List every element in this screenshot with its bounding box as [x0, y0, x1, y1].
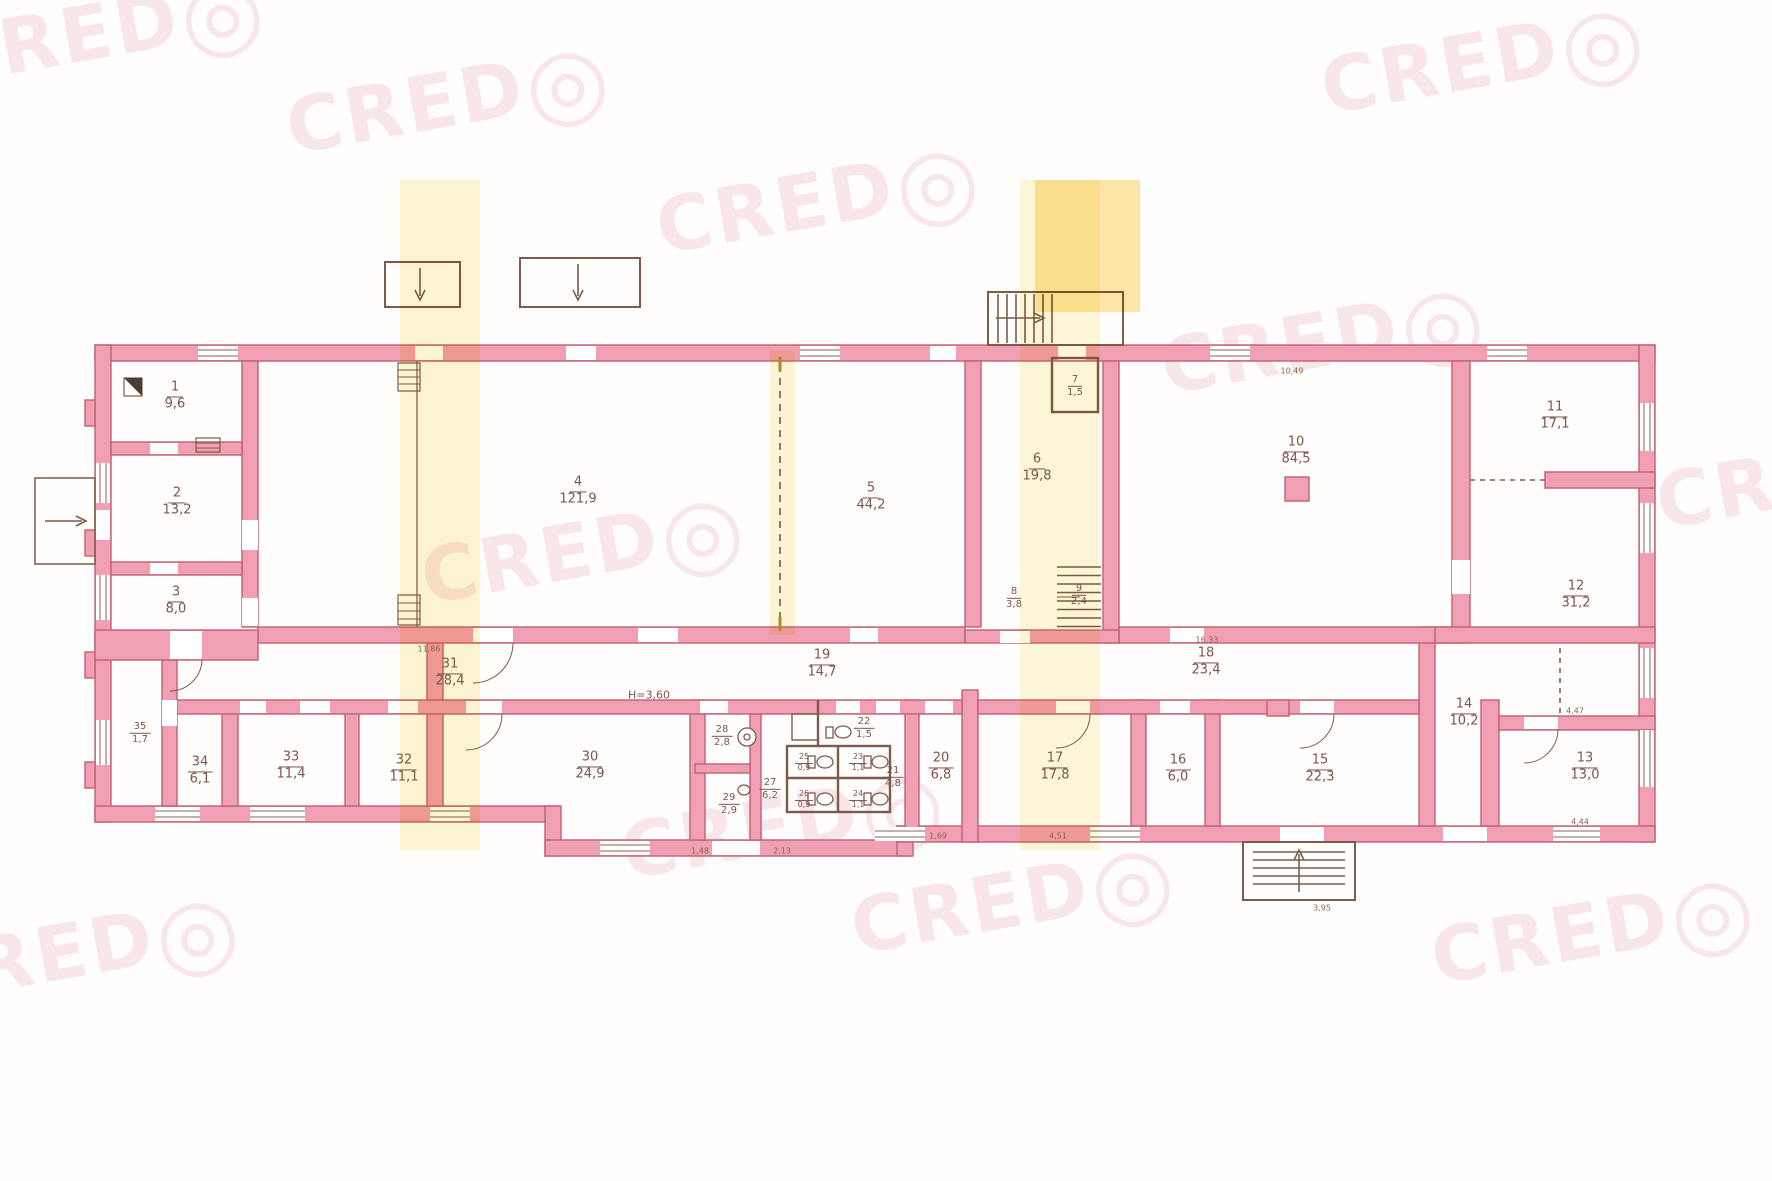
room-label-20: 206,8 [929, 751, 954, 782]
dimension-text: 2,13 [773, 847, 791, 856]
exterior-stair-bottom [1243, 842, 1355, 900]
room-label-9: 92,4 [1071, 583, 1087, 607]
room-label-8: 83,8 [1006, 586, 1022, 610]
walls [85, 345, 1655, 856]
room-label-16: 166,0 [1166, 753, 1191, 784]
dimension-text: 4,47 [1566, 707, 1584, 716]
room-label-29: 292,9 [719, 792, 740, 816]
room-label-13: 1313,0 [1571, 751, 1600, 782]
porch-top-1 [385, 262, 460, 307]
exterior-stair-top [988, 292, 1123, 345]
partition-line-room4 [196, 361, 420, 627]
column-room10 [1285, 477, 1309, 501]
room-label-26: 260,9 [795, 790, 813, 810]
dimension-text: 4,51 [1049, 832, 1067, 841]
dimension-text: 4,44 [1571, 818, 1589, 827]
floor-plan-scan: CRED◎ CRED◎ CRED◎ CRED◎ CRED◎ CRED◎ CRED… [0, 0, 1772, 1181]
room-label-7: 71,5 [1067, 374, 1083, 398]
room-label-4: 4121,9 [559, 475, 596, 506]
room-label-5: 544,2 [857, 481, 886, 512]
room-label-6: 619,8 [1023, 452, 1052, 483]
room-label-1: 19,6 [165, 380, 186, 411]
room-label-17: 1717,8 [1041, 751, 1070, 782]
floor-plan-drawing [0, 0, 1772, 1181]
dimension-text: 16,33 [1196, 636, 1219, 645]
room-label-2: 213,2 [163, 486, 192, 517]
sink-icon [738, 785, 750, 795]
room-label-21: 214,8 [883, 765, 904, 789]
dimension-text: 11,86 [418, 645, 441, 654]
room-label-24: 241,1 [849, 790, 867, 810]
room-label-35: 351,7 [130, 721, 151, 745]
room-label-11: 1117,1 [1541, 400, 1570, 431]
room-label-19: 1914,7 [808, 648, 837, 679]
toilet-icon [864, 793, 888, 805]
height-note: H=3,60 [628, 689, 670, 702]
room-label-33: 3311,4 [277, 750, 306, 781]
room-label-14: 1410,2 [1450, 697, 1479, 728]
room-label-3: 38,0 [166, 585, 187, 616]
room-label-28: 282,8 [712, 724, 733, 748]
room-label-32: 3211,1 [390, 753, 419, 784]
dimension-text: 10,49 [1281, 367, 1304, 376]
dimension-text: 3,95 [1313, 904, 1331, 913]
room-label-27: 276,2 [760, 777, 781, 801]
porch-top-2 [520, 258, 640, 307]
room-label-25: 250,9 [795, 753, 813, 773]
room-label-23: 231,1 [849, 753, 867, 773]
partition-dashed [780, 365, 1560, 714]
room-label-34: 346,1 [188, 755, 213, 786]
sink-icon [738, 728, 756, 746]
room-label-10: 1084,5 [1282, 435, 1311, 466]
room-label-31: 3128,4 [436, 657, 465, 688]
toilet-icon [826, 726, 851, 738]
room-label-22: 221,5 [854, 716, 875, 740]
dimension-text: 1,48 [691, 847, 709, 856]
room-label-15: 1522,3 [1306, 753, 1335, 784]
north-marker [124, 378, 142, 396]
room-label-30: 3024,9 [576, 750, 605, 781]
room-label-18: 1823,4 [1192, 646, 1221, 677]
window-lines [100, 350, 1650, 851]
room-label-12: 1231,2 [1562, 579, 1591, 610]
dimension-text: 1,69 [929, 832, 947, 841]
